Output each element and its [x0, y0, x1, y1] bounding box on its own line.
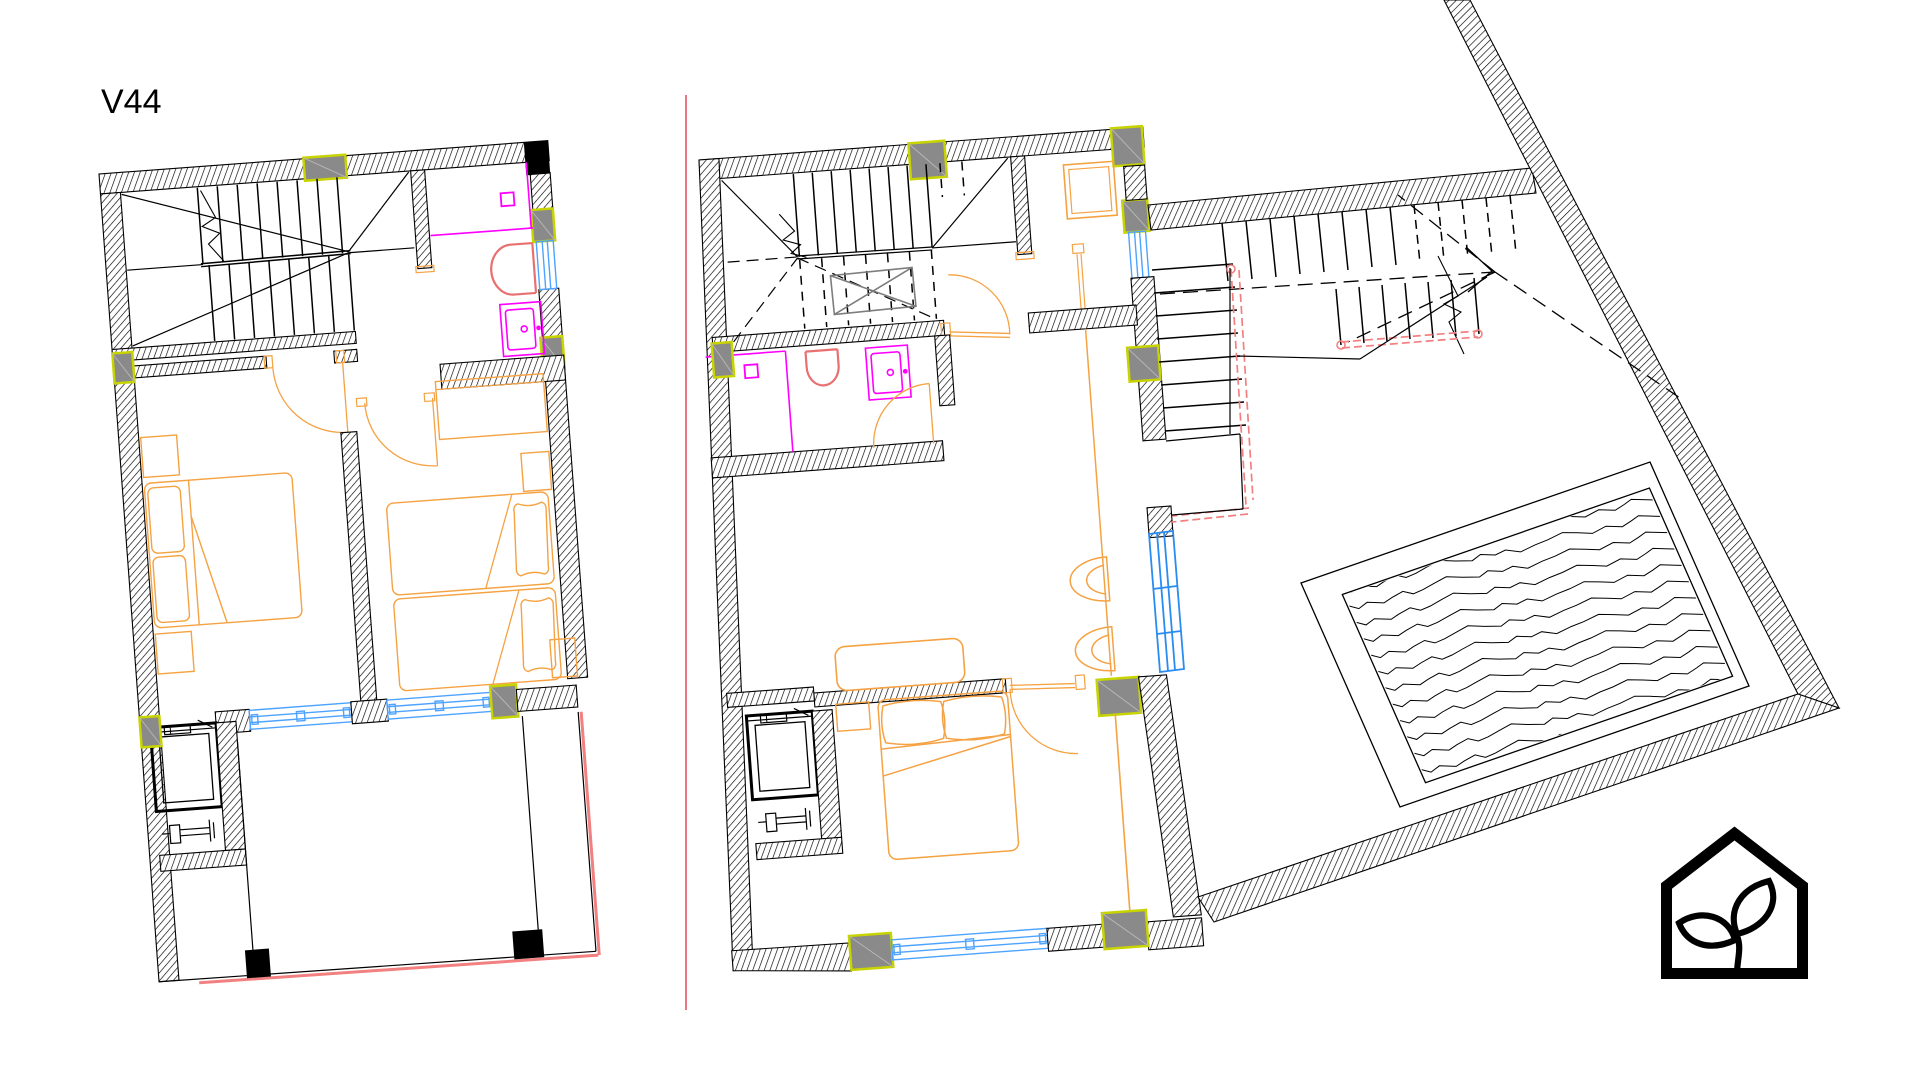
svg-text:V44: V44 — [101, 83, 162, 121]
